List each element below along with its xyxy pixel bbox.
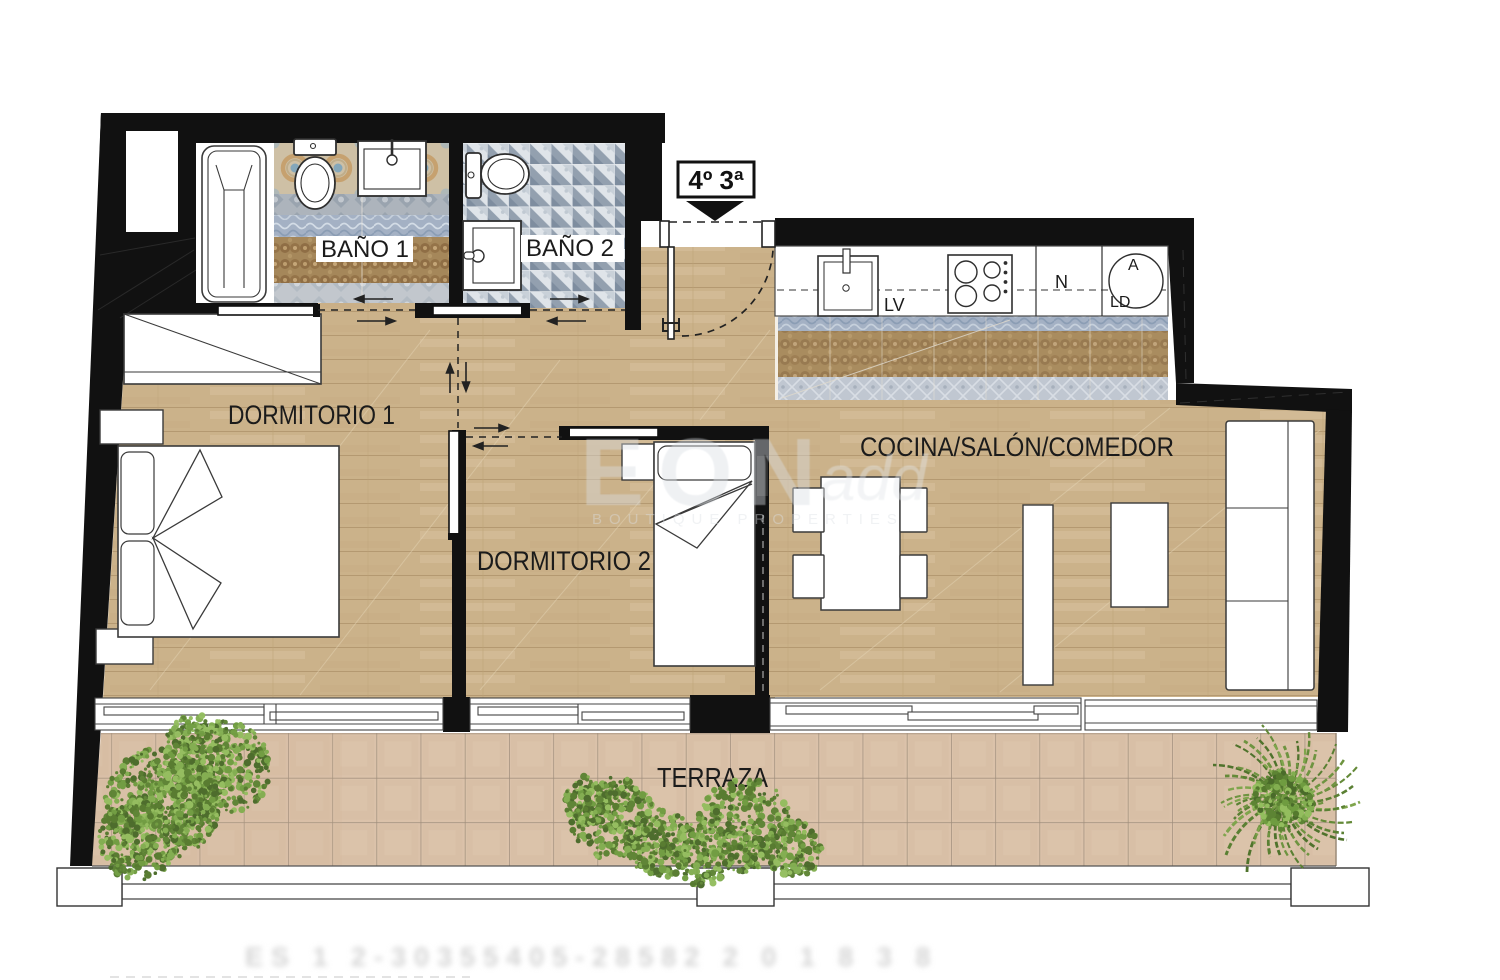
svg-text:LV: LV [884, 295, 905, 315]
svg-text:DORMITORIO 1: DORMITORIO 1 [228, 400, 395, 430]
svg-text:N: N [1055, 272, 1068, 292]
svg-text:add: add [820, 442, 929, 514]
svg-text:BAÑO 1: BAÑO 1 [321, 236, 409, 263]
svg-text:LD: LD [1110, 294, 1130, 311]
svg-text:A: A [1128, 257, 1139, 274]
svg-text:BAÑO 2: BAÑO 2 [526, 235, 614, 262]
svg-text:EON: EON [580, 419, 830, 526]
svg-text:BOUTIQUE PROPERTIES: BOUTIQUE PROPERTIES [592, 511, 904, 528]
svg-text:DORMITORIO 2: DORMITORIO 2 [477, 546, 651, 576]
svg-text:ES 1 2-30355405-28582 2 0 1 8: ES 1 2-30355405-28582 2 0 1 8 3 8 [245, 942, 938, 972]
svg-text:4º 3ª: 4º 3ª [688, 165, 744, 195]
